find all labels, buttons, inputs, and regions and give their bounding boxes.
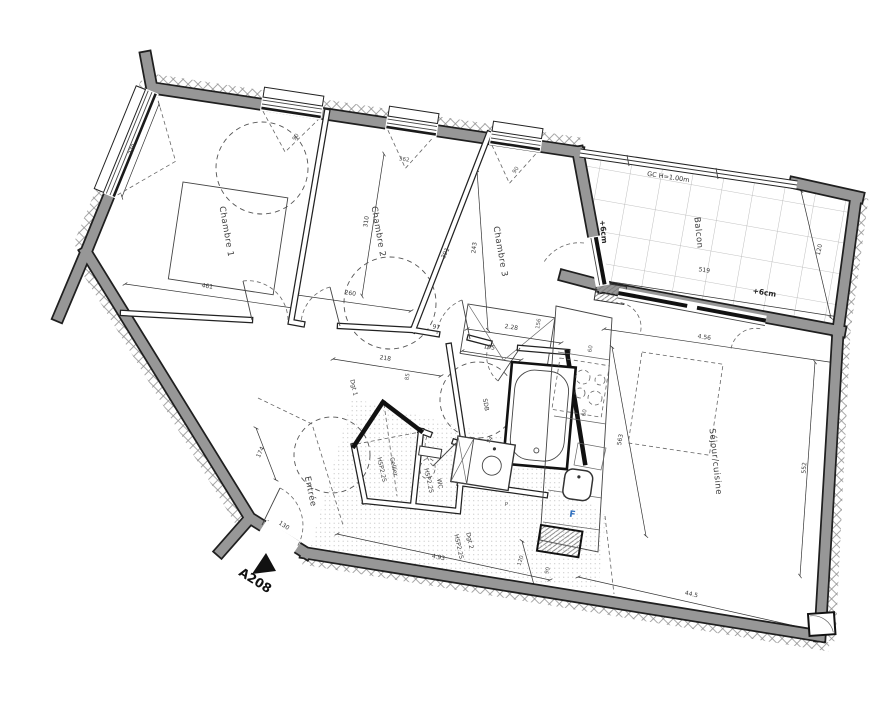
room-label-entree: Entrée [302,475,319,507]
balcony-door-swing [544,243,584,262]
dim-362: 362 [399,156,410,164]
door-chambre1 [243,281,288,322]
dim-60a: 60 [587,344,594,352]
door-chambre3 [437,300,470,339]
duct-shaft [537,525,583,557]
room-label-chambre1: Chambre 1 [217,205,236,257]
dim-156: 156 [535,318,543,330]
room-label-chambre2: Chambre 2 [369,205,388,257]
dim-85: 85 [404,372,411,380]
dim-243: 243 [470,242,478,254]
corner-post [808,612,835,636]
room-label-dgt1: Dgt 1 [348,379,358,397]
dim-552: 552 [801,462,809,474]
room-label-sdb: SDB [481,398,490,412]
dim-563: 563 [616,433,625,446]
dim-174: 174 [255,446,266,460]
vanity-sink [451,436,515,491]
window-chambre3 [484,121,544,187]
room-label-sejour: Séjour/cuisine [707,428,725,496]
floor-plan-page: Chambre 1 Chambre 2 Chambre 3 Balcon Séj… [0,0,883,704]
dim-90a: 90 [292,132,301,142]
window-chambre2 [380,106,440,172]
dim-310: 310 [362,215,371,228]
dim-60b: 60 [581,408,588,416]
dim-97: 97 [432,323,441,331]
door-chambre2 [301,287,340,326]
unit-marker: A208 [236,553,276,596]
dim-195: 195 [483,343,496,352]
dim-260: 260 [344,289,357,298]
dim-218: 218 [379,354,392,363]
dim-445: 44.5 [684,590,699,600]
floor-plan-drawing: Chambre 1 Chambre 2 Chambre 3 Balcon Séj… [0,0,883,704]
room-label-chambre3: Chambre 3 [491,225,510,277]
dim-90b: 90 [512,165,521,175]
dim-456: 4.56 [697,333,711,342]
dim-461: 461 [201,282,214,291]
dim-228: 2.28 [504,323,518,332]
